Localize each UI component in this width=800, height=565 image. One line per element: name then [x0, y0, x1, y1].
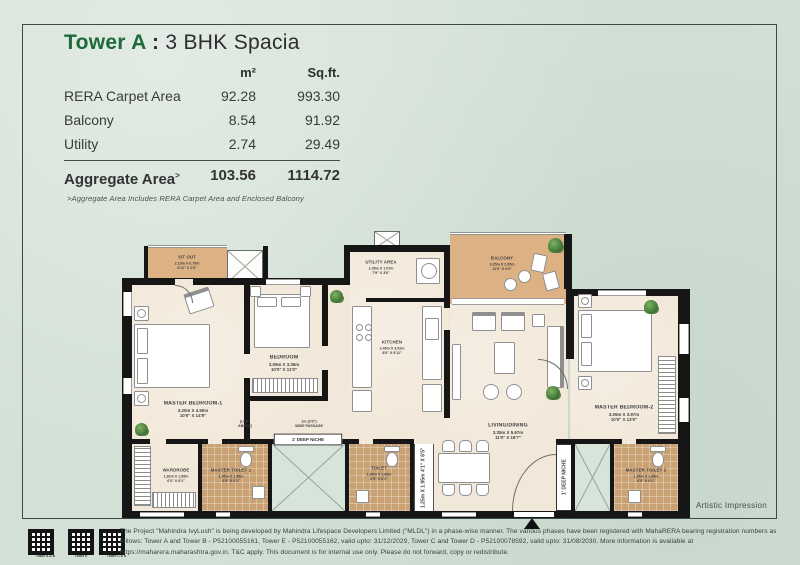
qr-label: Tower A & B — [36, 555, 55, 558]
col-header-sqft: Sq.ft. — [256, 62, 340, 84]
room-label-utility: UTILITY AREA2.35m X 1.07m7'9" X 3'6" — [356, 261, 406, 275]
qr-code — [28, 529, 54, 555]
balcony-chair — [542, 270, 560, 291]
dining-table — [438, 453, 490, 483]
room-label-sit-out: SIT OUT2.10m X 0.75m6'11" X 2'6" — [158, 256, 216, 270]
door-swing — [175, 285, 193, 303]
dining-chair — [459, 440, 472, 452]
nightstand — [300, 286, 311, 297]
loft-label: (LOFTABOVE) — [224, 420, 266, 429]
room-label-master-bedroom-2: MASTER BEDROOM-23.05m X 3.97m10'0" X 13'… — [578, 405, 670, 423]
aggregate-label: Aggregate Area˃ — [64, 164, 184, 192]
row-label: RERA Carpet Area — [64, 84, 184, 108]
area-table: m² Sq.ft. RERA Carpet Area 92.28 993.30 … — [64, 62, 340, 192]
dining-chair — [476, 440, 489, 452]
plant — [135, 423, 148, 436]
dining-chair — [442, 484, 455, 496]
dining-chair — [459, 484, 472, 496]
plant — [330, 290, 343, 303]
room-label-balcony: BALCONY3.35m X 2.05m11'0" X 6'9" — [473, 257, 531, 271]
room-label-kitchen: KITCHEN2.45m X 3.02m8'0" X 9'11" — [369, 341, 415, 355]
table-footnote: ˃Aggregate Area Includes RERA Carpet Are… — [67, 194, 304, 203]
tv-unit — [452, 344, 461, 400]
row-sqft: 91.92 — [256, 108, 340, 132]
col-header-m2: m² — [184, 62, 256, 84]
fridge — [352, 390, 372, 412]
coffee-table — [494, 342, 515, 374]
plant — [548, 238, 563, 253]
pouf — [506, 384, 522, 400]
deep-niche-label: 1' DEEP NICHE — [274, 434, 342, 446]
wc — [386, 452, 398, 467]
dining-chair — [476, 484, 489, 496]
aggregate-sqft: 1114.72 — [256, 164, 340, 192]
row-m2: 8.54 — [184, 108, 256, 132]
tower-name: Tower A — [64, 31, 146, 54]
cabinet — [422, 384, 442, 412]
row-sqft: 993.30 — [256, 84, 340, 108]
row-label: Balcony — [64, 108, 184, 132]
wardrobe-unit — [134, 446, 151, 506]
wardrobe-unit — [252, 378, 318, 393]
balcony-chair — [504, 278, 517, 291]
deep-niche-vertical-label: 1' DEEP NICHE — [557, 446, 573, 509]
balcony-table — [518, 270, 531, 283]
plan-name: 3 BHK Spacia — [165, 31, 299, 54]
inner-passage-label: 1.25m X 1.95m 4'1" X 6'5" — [414, 446, 434, 509]
entrance-door-swing — [512, 454, 556, 511]
qr-code — [68, 529, 94, 555]
artistic-impression-note: Artistic Impression — [696, 501, 767, 510]
furniture-layer — [120, 228, 696, 524]
row-label: Utility — [64, 132, 184, 156]
sink — [425, 318, 439, 340]
nightstand — [250, 286, 261, 297]
row-m2: 92.28 — [184, 84, 256, 108]
qr-code-group: Tower A & B Tower E Tower C & D — [28, 529, 134, 561]
washbasin — [628, 490, 641, 503]
room-label-toilet: TOILET1.95m X 1.85m6'5" X 6'1" — [358, 467, 400, 481]
washbasin — [356, 490, 369, 503]
side-table — [532, 314, 545, 327]
pouf — [483, 384, 499, 400]
room-label-master-toilet-2: MASTER TOILET 21.95m X 1.85m6'5" X 6'1" — [623, 469, 669, 483]
room-label-wardrobe: WARDROBE1.82m X 1.85m6'0" X 6'1" — [156, 469, 196, 483]
room-label-living-dining: LIVING/DINING3.35m X 5.67m11'0" X 18'7" — [473, 423, 543, 441]
table-divider — [64, 160, 340, 161]
page-title: Tower A : 3 BHK Spacia — [64, 31, 300, 55]
room-label-bedroom: BEDROOM3.05m X 3.35m10'0" X 11'0" — [249, 355, 319, 373]
row-m2: 2.74 — [184, 132, 256, 156]
floor-plan: SIT OUT2.10m X 0.75m6'11" X 2'6" MASTER … — [120, 228, 696, 524]
row-sqft: 29.49 — [256, 132, 340, 156]
armchair — [501, 312, 525, 331]
wc — [240, 452, 252, 467]
wardrobe-unit — [152, 492, 196, 508]
dining-chair — [442, 440, 455, 452]
balcony-chair — [530, 253, 547, 274]
aggregate-m2: 103.56 — [184, 164, 256, 192]
room-label-master-bedroom-1: MASTER BEDROOM-13.20m X 4.50m10'6" X 14'… — [145, 401, 242, 419]
plant — [644, 300, 658, 314]
passage-label: 1m (3'3")WIDE PASSAGE — [287, 420, 332, 429]
room-label-master-toilet-1: MASTER TOILET 11.95m X 1.85m6'5" X 6'1" — [209, 469, 254, 483]
rera-disclaimer: The Project "Mahindra IvyLush" is being … — [120, 527, 778, 558]
washbasin — [252, 486, 265, 499]
armchair — [472, 312, 496, 331]
wc — [652, 452, 664, 467]
qr-label: Tower E — [74, 555, 88, 558]
